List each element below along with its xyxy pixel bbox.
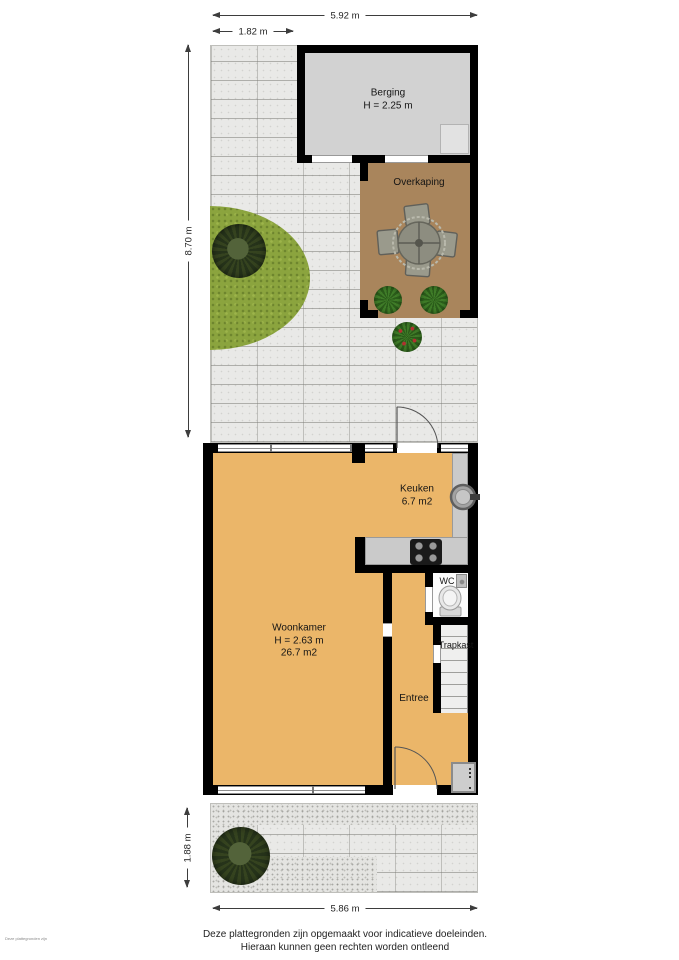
flower-plant-icon <box>392 322 422 352</box>
wc-door-opening <box>425 587 433 612</box>
front-door-swing-icon <box>393 744 439 791</box>
arrow-right-icon <box>286 28 294 34</box>
window <box>218 444 393 452</box>
keuken-name: Keuken <box>400 484 434 497</box>
dimension-front-depth: 1.88 m <box>187 808 188 887</box>
arrow-left-icon <box>212 12 220 18</box>
entree-label: Entree <box>399 693 428 706</box>
dimension-garden-depth: 8.70 m <box>188 45 189 437</box>
window <box>218 786 365 794</box>
front-garden-gravel <box>255 804 477 825</box>
interior-wall <box>355 565 478 573</box>
wc-wall <box>425 617 478 625</box>
disclaimer-line2: Hieraan kunnen geen rechten worden ontle… <box>103 941 587 954</box>
watermark-text: Deze plattegronden zijn opgemaakt voor i… <box>5 936 47 942</box>
berging-door-opening <box>312 155 352 163</box>
front-garden-gravel <box>255 857 377 892</box>
trapkast-label: Trapkast <box>439 639 474 652</box>
overkaping-wall-stub <box>360 163 368 181</box>
window-mullion <box>270 444 272 452</box>
kitchen-wall-stub <box>352 443 365 463</box>
woonkamer-name: Woonkamer <box>272 622 326 635</box>
dimension-top-left-label: 1.82 m <box>232 27 273 38</box>
arrow-down-icon <box>185 430 191 438</box>
keuken-label: Keuken 6.7 m2 <box>400 484 434 509</box>
overkaping-wall-stub <box>460 310 478 318</box>
berging-name: Berging <box>363 88 412 101</box>
window <box>441 444 468 452</box>
berging-label: Berging H = 2.25 m <box>363 88 412 113</box>
overkaping-label: Overkaping <box>393 177 444 190</box>
arrow-left-icon <box>212 905 220 911</box>
dimension-front-depth-label: 1.88 m <box>183 827 194 868</box>
hall-door-opening <box>383 623 392 637</box>
tree-icon <box>212 224 266 278</box>
washbasin-icon <box>456 574 467 588</box>
hall-wall <box>383 637 392 785</box>
woonkamer-area: 26.7 m2 <box>272 647 326 660</box>
arrow-down-icon <box>184 880 190 888</box>
arrow-right-icon <box>470 12 478 18</box>
berging-height: H = 2.25 m <box>363 100 412 113</box>
wc-wall <box>425 565 433 587</box>
toilet-icon <box>436 585 464 617</box>
keuken-area: 6.7 m2 <box>400 496 434 509</box>
meter-cabinet-icon <box>451 762 476 793</box>
wc-label: WC <box>440 575 455 588</box>
disclaimer-line1: Deze plattegronden zijn opgemaakt voor i… <box>103 928 587 941</box>
meter-cabinet-dots <box>469 768 471 770</box>
arrow-left-icon <box>212 28 220 34</box>
plant-icon <box>420 286 448 314</box>
dimension-top-left: 1.82 m <box>213 31 293 32</box>
dimension-bottom-total: 5.86 m <box>213 908 477 909</box>
cooktop-icon <box>410 539 442 565</box>
arrow-right-icon <box>470 905 478 911</box>
hall-wall <box>383 565 392 623</box>
window-mullion <box>312 786 314 794</box>
overkaping-wall-stub <box>360 310 378 318</box>
disclaimer: Deze plattegronden zijn opgemaakt voor i… <box>103 928 587 954</box>
garden-door-swing-icon <box>395 404 441 453</box>
floor-plan-page: 5.92 m 1.82 m 8.70 m 1.88 m 5.86 m Bergi… <box>0 0 679 960</box>
plant-icon <box>374 286 402 314</box>
arrow-up-icon <box>184 807 190 815</box>
garden-table-icon <box>363 196 475 292</box>
tree-icon <box>212 827 270 885</box>
dimension-bottom-total-label: 5.86 m <box>324 904 365 915</box>
woonkamer-height: H = 2.63 m <box>272 635 326 648</box>
berging-mat <box>440 124 469 154</box>
arrow-up-icon <box>185 44 191 52</box>
dimension-garden-depth-label: 8.70 m <box>184 220 195 261</box>
berging-door-opening <box>385 155 428 163</box>
sink-icon <box>448 482 480 514</box>
woonkamer-label: Woonkamer H = 2.63 m 26.7 m2 <box>272 622 326 660</box>
dimension-top-total: 5.92 m <box>213 15 477 16</box>
dimension-top-total-label: 5.92 m <box>324 11 365 22</box>
